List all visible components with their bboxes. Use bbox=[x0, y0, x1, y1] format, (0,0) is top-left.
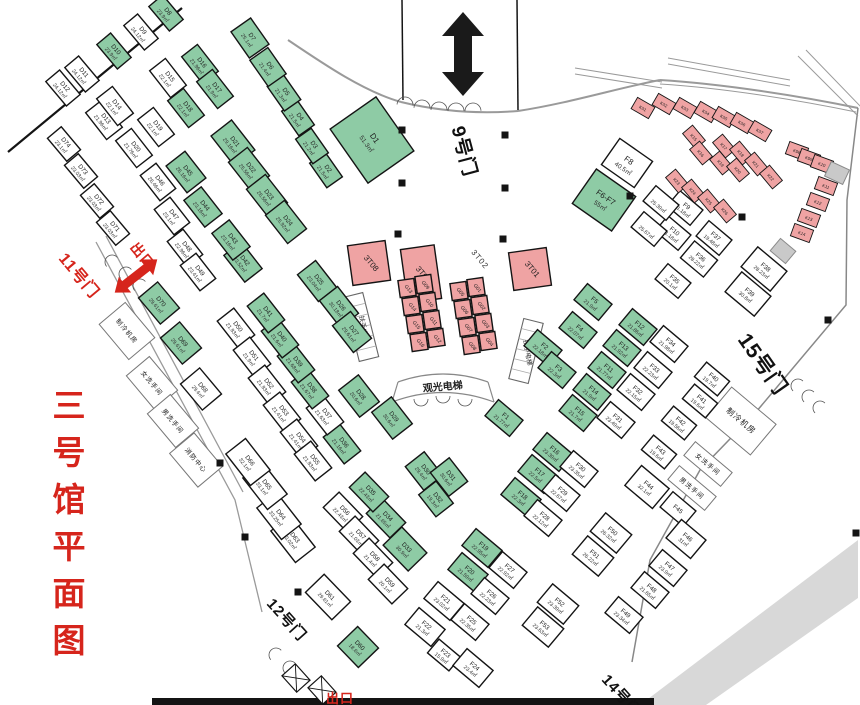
wall bbox=[488, 382, 494, 402]
booth-G04: G04 bbox=[479, 331, 497, 350]
label-15号门: 15号门 bbox=[733, 329, 792, 400]
column bbox=[502, 185, 509, 192]
gate9-direction-arrow bbox=[442, 12, 484, 96]
booth-3T01: 3T01 bbox=[509, 248, 552, 291]
booth-D8: D823.9㎡ bbox=[149, 0, 183, 31]
door-arc bbox=[799, 387, 814, 402]
booth-D9: D924.12㎡ bbox=[124, 14, 158, 50]
booth-G03: G03 bbox=[475, 313, 493, 332]
label-11号门: 11号门 bbox=[55, 249, 104, 302]
booth-F35: F3520.1㎡ bbox=[655, 264, 691, 299]
booth-G15: G15 bbox=[406, 314, 424, 333]
booth-D47: D4723.1㎡ bbox=[154, 197, 189, 235]
booth-G11: G11 bbox=[423, 310, 441, 329]
booth-F31: F3123.49㎡ bbox=[597, 402, 635, 439]
booth-F24: F2423.4㎡ bbox=[453, 649, 493, 688]
column bbox=[825, 317, 832, 324]
booth-F42: F4219.56㎡ bbox=[661, 406, 696, 440]
wall bbox=[402, 0, 403, 100]
door-arc bbox=[266, 645, 281, 660]
booth-D44: D4423.16㎡ bbox=[184, 187, 222, 227]
booth-G01: G01 bbox=[467, 277, 485, 296]
wall bbox=[398, 374, 488, 382]
booth-K02: K02 bbox=[652, 93, 676, 114]
booth-K01: K01 bbox=[631, 97, 655, 118]
wall bbox=[575, 68, 662, 82]
booth-F44: F4432.1㎡ bbox=[625, 465, 669, 508]
booth-G14: G14 bbox=[402, 296, 420, 315]
booth-G05: G05 bbox=[450, 281, 468, 300]
column bbox=[502, 132, 509, 139]
booth-G08: G08 bbox=[462, 335, 480, 354]
column bbox=[739, 214, 746, 221]
floor-plan-canvas: 制冷机房女洗手间男洗手间消防中心制冷机房女洗手间男洗手间扶手电梯扶手电梯观光电梯… bbox=[0, 0, 860, 705]
booth-F4: F422.07㎡ bbox=[559, 312, 597, 349]
wall bbox=[668, 58, 790, 80]
label-12号门: 12号门 bbox=[263, 595, 310, 645]
wall bbox=[575, 74, 662, 88]
booth-K03: K03 bbox=[673, 97, 697, 118]
column bbox=[399, 180, 406, 187]
wall bbox=[288, 40, 401, 102]
booth-G09: G09 bbox=[415, 274, 433, 293]
booth-D19: D1922.1㎡ bbox=[138, 107, 175, 146]
wall bbox=[392, 393, 494, 403]
booth-G16: G16 bbox=[410, 332, 428, 351]
booth-G10: G10 bbox=[419, 292, 437, 311]
door-arc bbox=[458, 399, 472, 406]
lift-shaft bbox=[282, 664, 310, 692]
booth-D61: D6129.61㎡ bbox=[305, 574, 350, 619]
booth-G12: G12 bbox=[427, 328, 445, 347]
booth-F5: F521.9㎡ bbox=[574, 284, 612, 321]
door-arc bbox=[414, 399, 428, 406]
booth-G02: G02 bbox=[471, 295, 489, 314]
booth-F46: F4631㎡ bbox=[666, 520, 706, 559]
label-9号门: 9号门 bbox=[446, 123, 482, 179]
booth-G13: G13 bbox=[398, 278, 416, 297]
column bbox=[500, 236, 507, 243]
booth-D69: D6929.61㎡ bbox=[160, 322, 201, 364]
booth-D1: D151.3㎡ bbox=[330, 97, 414, 183]
label-3T02: 3T02 bbox=[469, 248, 490, 271]
wall bbox=[798, 56, 858, 116]
booth-G06: G06 bbox=[454, 299, 472, 318]
door-arc bbox=[810, 398, 825, 413]
column bbox=[395, 231, 402, 238]
observation-elevator-label: 观光电梯 bbox=[422, 378, 463, 394]
door-arc bbox=[436, 396, 450, 403]
column bbox=[627, 193, 634, 200]
booth-D60: D6018.6㎡ bbox=[338, 626, 379, 667]
booth-D68: D6829.6㎡ bbox=[180, 368, 221, 410]
booth-D20: D2021.76㎡ bbox=[116, 128, 153, 167]
booth-K12: K12 bbox=[806, 192, 829, 211]
door-arc bbox=[465, 103, 481, 112]
booth-K13: K13 bbox=[797, 208, 820, 227]
plan-title: 三号馆平面图 bbox=[44, 388, 88, 670]
floor-plan-svg: 制冷机房女洗手间男洗手间消防中心制冷机房女洗手间男洗手间扶手电梯扶手电梯观光电梯… bbox=[0, 0, 860, 705]
booth-K14: K14 bbox=[790, 223, 813, 242]
column bbox=[399, 127, 406, 134]
label-出口: 出口 bbox=[326, 691, 354, 705]
booth-3T08: 3T08 bbox=[347, 241, 390, 286]
booth-F43: F4319.6㎡ bbox=[641, 435, 676, 469]
booth-G07: G07 bbox=[458, 317, 476, 336]
service-room: 制冷机房 bbox=[706, 387, 776, 455]
booth-D10: D1023.9㎡ bbox=[97, 33, 131, 69]
column bbox=[242, 534, 249, 541]
bottom-wall bbox=[152, 698, 654, 705]
column bbox=[217, 460, 224, 467]
column bbox=[853, 530, 860, 537]
booth-F1: F121.77㎡ bbox=[485, 400, 523, 437]
wall bbox=[517, 0, 518, 110]
column bbox=[295, 589, 302, 596]
booth-D70: D7029.61㎡ bbox=[138, 282, 179, 324]
